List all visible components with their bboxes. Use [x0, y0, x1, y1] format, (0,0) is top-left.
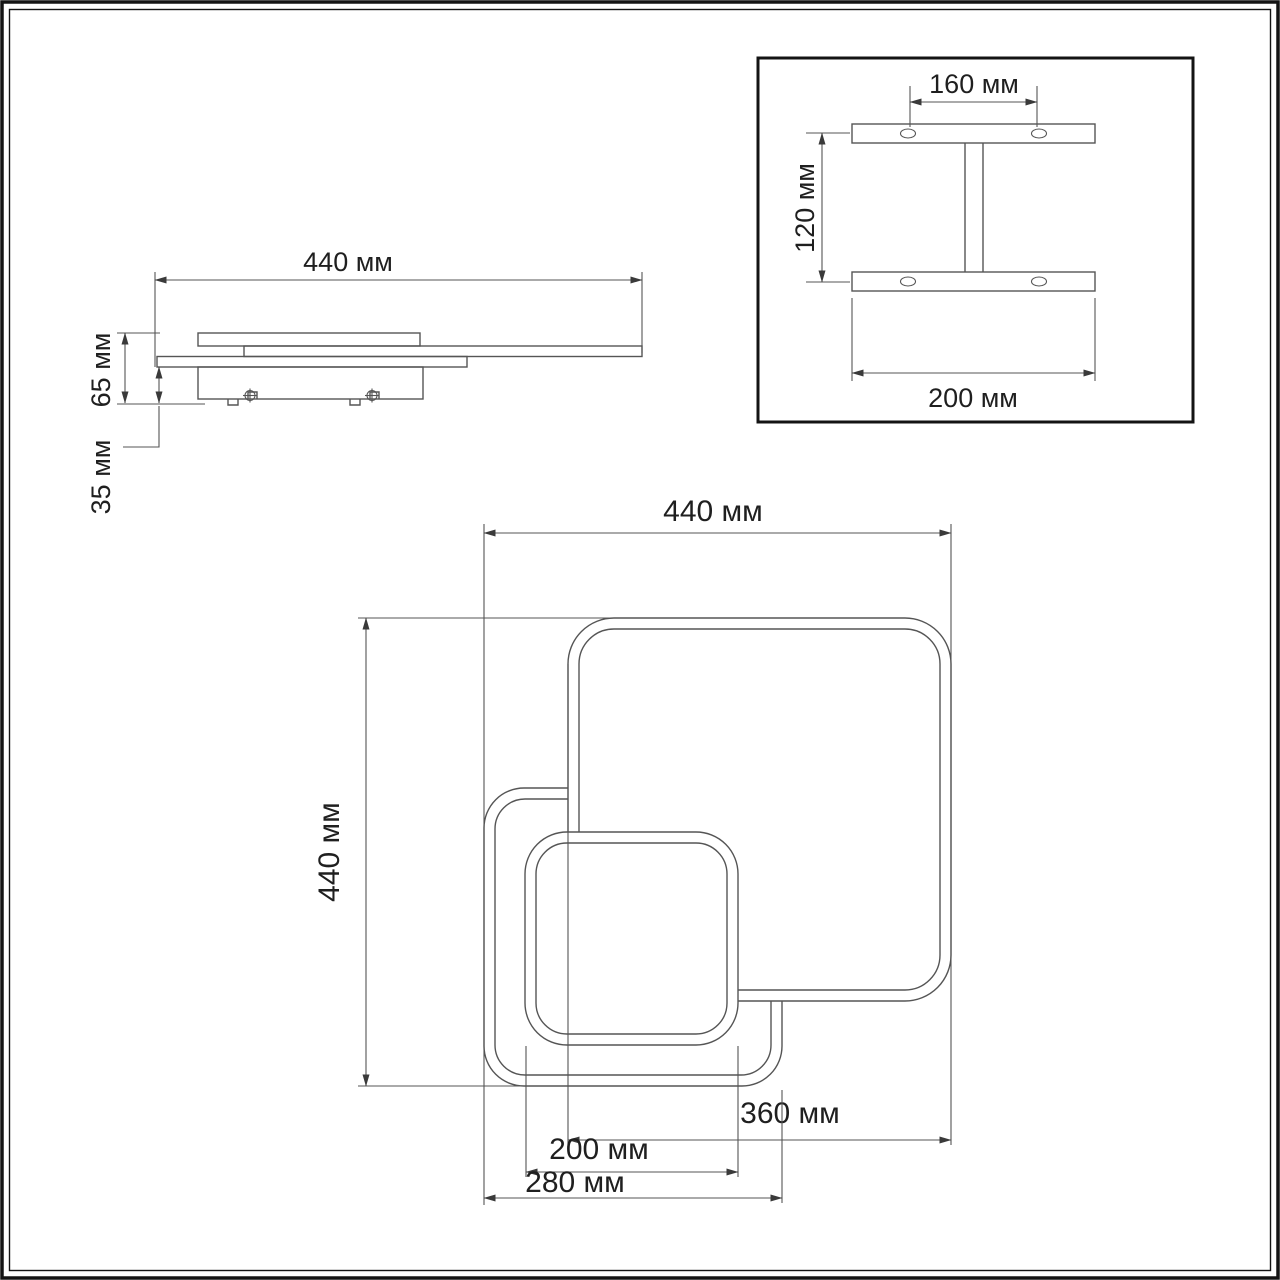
bracket-hole-spacing-label: 160 мм — [929, 69, 1019, 99]
dim-bracket-bar-spacing: 120 мм — [790, 133, 850, 282]
screw-symbol — [243, 389, 257, 403]
mount-hole — [1032, 277, 1047, 286]
lamp-dimension-drawing: 440 мм 65 мм 35 мм — [0, 0, 1280, 1280]
small-square-outline — [525, 832, 738, 1045]
technical-drawing-page: 440 мм 65 мм 35 мм — [0, 0, 1280, 1280]
plan-view-drawing: 440 мм 440 мм 360 мм 200 мм 280 мм — [313, 495, 951, 1205]
mount-clip-right — [350, 389, 379, 406]
side-small-frame-plate — [198, 333, 420, 346]
mounting-bracket-detail: 160 мм 120 мм 200 мм — [758, 58, 1193, 422]
side-large-frame-plate — [244, 346, 642, 357]
dim-side-height: 65 мм — [86, 333, 205, 408]
side-view-drawing: 440 мм 65 мм 35 мм — [86, 247, 642, 514]
bracket-bottom-bar — [852, 272, 1095, 291]
side-height-label: 65 мм — [86, 333, 116, 408]
detail-box-frame — [758, 58, 1193, 422]
plan-height-label: 440 мм — [313, 802, 346, 902]
mount-clip-left — [228, 389, 257, 406]
dim-side-width: 440 мм — [155, 247, 642, 367]
side-canopy-box — [198, 367, 423, 399]
small-square-label: 200 мм — [549, 1133, 649, 1166]
mount-hole — [901, 129, 916, 138]
medium-square-label: 280 мм — [525, 1166, 625, 1199]
mount-hole — [901, 277, 916, 286]
large-square-label: 360 мм — [740, 1097, 840, 1130]
side-mount-height-label: 35 мм — [86, 440, 116, 515]
bracket-top-bar — [852, 124, 1095, 143]
side-width-label: 440 мм — [303, 247, 393, 277]
bracket-bar-spacing-label: 120 мм — [790, 163, 820, 253]
mount-hole — [1032, 129, 1047, 138]
dim-bracket-bar-length: 200 мм — [852, 298, 1095, 413]
plan-width-label: 440 мм — [663, 495, 763, 528]
screw-symbol — [365, 389, 379, 403]
side-medium-frame-plate — [157, 357, 467, 368]
bracket-bar-length-label: 200 мм — [928, 383, 1018, 413]
dim-bracket-hole-spacing: 160 мм — [910, 69, 1037, 127]
